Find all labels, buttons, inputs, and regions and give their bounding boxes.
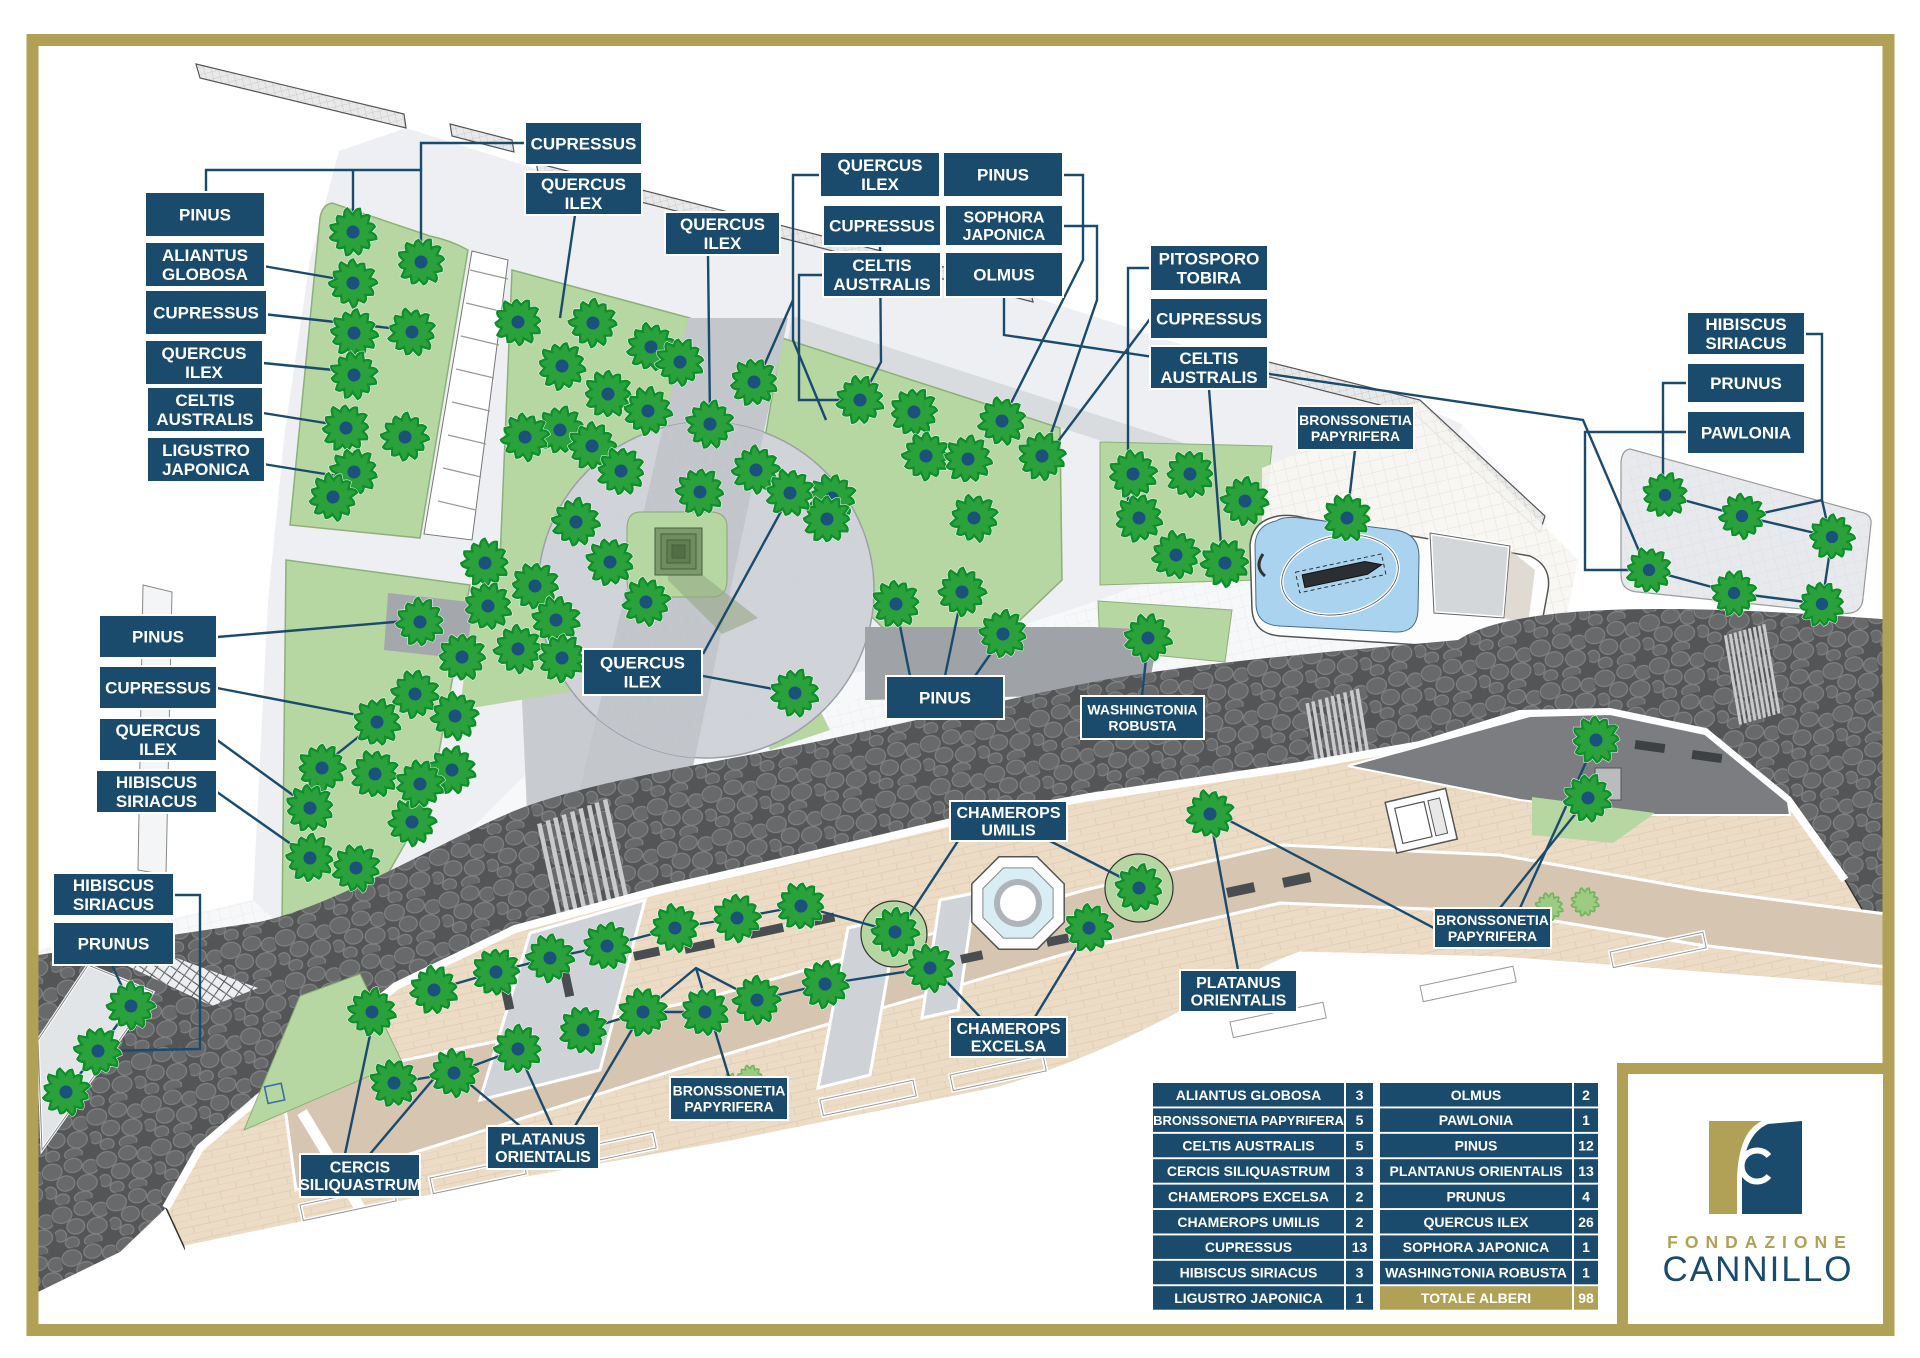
svg-text:BRONSSONETIA: BRONSSONETIA [673, 1083, 786, 1099]
svg-text:JAPONICA: JAPONICA [963, 227, 1046, 244]
svg-text:QUERCUS: QUERCUS [161, 344, 246, 363]
svg-text:PRUNUS: PRUNUS [1446, 1188, 1505, 1204]
svg-text:1: 1 [1582, 1239, 1590, 1255]
svg-text:3: 3 [1356, 1163, 1364, 1179]
svg-text:CHAMEROPS EXCELSA: CHAMEROPS EXCELSA [1168, 1188, 1329, 1204]
svg-text:QUERCUS: QUERCUS [115, 721, 200, 740]
svg-text:PAPYRIFERA: PAPYRIFERA [1311, 428, 1400, 444]
svg-text:ILEX: ILEX [704, 234, 742, 253]
svg-text:GLOBOSA: GLOBOSA [162, 265, 248, 284]
svg-text:2: 2 [1356, 1188, 1364, 1204]
svg-text:CUPRESSUS: CUPRESSUS [105, 679, 211, 698]
svg-text:LIGUSTRO: LIGUSTRO [162, 441, 250, 460]
svg-text:26: 26 [1578, 1214, 1594, 1230]
svg-text:ILEX: ILEX [861, 175, 899, 194]
svg-text:BRONSSONETIA: BRONSSONETIA [1299, 412, 1412, 428]
svg-text:SIRIACUS: SIRIACUS [116, 792, 197, 811]
svg-text:1: 1 [1582, 1265, 1590, 1281]
svg-text:HIBISCUS SIRIACUS: HIBISCUS SIRIACUS [1180, 1265, 1318, 1281]
svg-text:EXCELSA: EXCELSA [971, 1039, 1047, 1056]
svg-text:98: 98 [1578, 1290, 1594, 1306]
svg-text:SOPHORA JAPONICA: SOPHORA JAPONICA [1403, 1239, 1550, 1255]
svg-text:CELTIS AUSTRALIS: CELTIS AUSTRALIS [1182, 1138, 1314, 1154]
svg-text:PLATANUS: PLATANUS [501, 1131, 586, 1148]
svg-text:CUPRESSUS: CUPRESSUS [531, 135, 637, 154]
svg-text:OLMUS: OLMUS [1451, 1087, 1502, 1103]
svg-text:BRONSSONETIA PAPYRIFERA: BRONSSONETIA PAPYRIFERA [1153, 1113, 1344, 1128]
svg-text:ROBUSTA: ROBUSTA [1108, 717, 1176, 733]
svg-text:ORIENTALIS: ORIENTALIS [1191, 993, 1287, 1010]
svg-text:SILIQUASTRUM: SILIQUASTRUM [299, 1177, 421, 1194]
svg-text:QUERCUS: QUERCUS [837, 156, 922, 175]
svg-text:PINUS: PINUS [919, 689, 971, 708]
svg-text:HIBISCUS: HIBISCUS [1705, 315, 1786, 334]
svg-text:PRUNUS: PRUNUS [78, 935, 150, 954]
svg-text:CELTIS: CELTIS [175, 391, 234, 410]
svg-text:HIBISCUS: HIBISCUS [73, 876, 154, 895]
svg-text:QUERCUS: QUERCUS [680, 215, 765, 234]
svg-text:2: 2 [1356, 1214, 1364, 1230]
svg-text:ILEX: ILEX [185, 363, 223, 382]
svg-text:LIGUSTRO JAPONICA: LIGUSTRO JAPONICA [1174, 1290, 1323, 1306]
svg-text:JAPONICA: JAPONICA [162, 460, 250, 479]
svg-text:PLATANUS: PLATANUS [1196, 975, 1281, 992]
svg-text:CUPRESSUS: CUPRESSUS [829, 217, 935, 236]
svg-text:CUPRESSUS: CUPRESSUS [1156, 310, 1262, 329]
svg-text:PINUS: PINUS [977, 166, 1029, 185]
svg-text:ILEX: ILEX [565, 194, 603, 213]
svg-text:5: 5 [1356, 1112, 1364, 1128]
svg-text:FONDAZIONE: FONDAZIONE [1667, 1232, 1853, 1252]
svg-text:AUSTRALIS: AUSTRALIS [156, 410, 253, 429]
svg-text:AUSTRALIS: AUSTRALIS [1160, 368, 1257, 387]
svg-text:QUERCUS ILEX: QUERCUS ILEX [1423, 1214, 1529, 1230]
svg-text:2: 2 [1582, 1087, 1590, 1103]
svg-text:QUERCUS: QUERCUS [600, 654, 685, 673]
svg-text:AUSTRALIS: AUSTRALIS [833, 275, 930, 294]
svg-text:PINUS: PINUS [179, 206, 231, 225]
svg-text:PITOSPORO: PITOSPORO [1159, 250, 1260, 269]
svg-text:PINUS: PINUS [132, 628, 184, 647]
svg-text:ALIANTUS: ALIANTUS [162, 246, 248, 265]
svg-text:CHAMEROPS: CHAMEROPS [956, 1021, 1060, 1038]
svg-text:1: 1 [1582, 1112, 1590, 1128]
svg-text:CHAMEROPS: CHAMEROPS [956, 805, 1060, 822]
svg-text:ORIENTALIS: ORIENTALIS [495, 1149, 591, 1166]
svg-text:WASHINGTONIA ROBUSTA: WASHINGTONIA ROBUSTA [1385, 1265, 1567, 1281]
svg-text:SIRIACUS: SIRIACUS [1705, 334, 1786, 353]
svg-text:CUPRESSUS: CUPRESSUS [1205, 1239, 1292, 1255]
svg-text:3: 3 [1356, 1087, 1364, 1103]
svg-text:1: 1 [1356, 1290, 1364, 1306]
svg-text:HIBISCUS: HIBISCUS [116, 773, 197, 792]
svg-text:CANNILLO: CANNILLO [1662, 1250, 1853, 1289]
svg-text:UMILIS: UMILIS [981, 823, 1036, 840]
svg-text:PLANTANUS ORIENTALIS: PLANTANUS ORIENTALIS [1390, 1163, 1563, 1179]
svg-text:OLMUS: OLMUS [973, 266, 1034, 285]
svg-text:SOPHORA: SOPHORA [964, 209, 1045, 226]
svg-text:CELTIS: CELTIS [852, 256, 911, 275]
svg-text:5: 5 [1356, 1138, 1364, 1154]
svg-text:CUPRESSUS: CUPRESSUS [153, 304, 259, 323]
svg-text:ILEX: ILEX [624, 673, 662, 692]
svg-text:13: 13 [1578, 1163, 1594, 1179]
svg-text:3: 3 [1356, 1265, 1364, 1281]
svg-text:PAWLONIA: PAWLONIA [1701, 424, 1791, 443]
svg-text:4: 4 [1582, 1188, 1590, 1204]
svg-text:PINUS: PINUS [1455, 1138, 1498, 1154]
svg-text:PAWLONIA: PAWLONIA [1439, 1112, 1513, 1128]
svg-text:ILEX: ILEX [139, 740, 177, 759]
svg-text:PRUNUS: PRUNUS [1710, 374, 1782, 393]
svg-text:TOTALE ALBERI: TOTALE ALBERI [1421, 1290, 1531, 1306]
svg-text:13: 13 [1352, 1239, 1368, 1255]
svg-text:SIRIACUS: SIRIACUS [73, 895, 154, 914]
svg-text:PAPYRIFERA: PAPYRIFERA [1448, 928, 1537, 944]
svg-text:QUERCUS: QUERCUS [541, 175, 626, 194]
svg-text:CELTIS: CELTIS [1179, 349, 1238, 368]
svg-text:CHAMEROPS UMILIS: CHAMEROPS UMILIS [1177, 1214, 1319, 1230]
svg-text:CERCIS SILIQUASTRUM: CERCIS SILIQUASTRUM [1167, 1163, 1330, 1179]
svg-text:BRONSSONETIA: BRONSSONETIA [1436, 912, 1549, 928]
svg-text:CERCIS: CERCIS [330, 1159, 391, 1176]
svg-text:12: 12 [1578, 1138, 1594, 1154]
svg-text:PAPYRIFERA: PAPYRIFERA [684, 1098, 773, 1114]
svg-text:ALIANTUS GLOBOSA: ALIANTUS GLOBOSA [1176, 1087, 1321, 1103]
svg-text:TOBIRA: TOBIRA [1177, 269, 1242, 288]
svg-text:WASHINGTONIA: WASHINGTONIA [1087, 702, 1197, 718]
